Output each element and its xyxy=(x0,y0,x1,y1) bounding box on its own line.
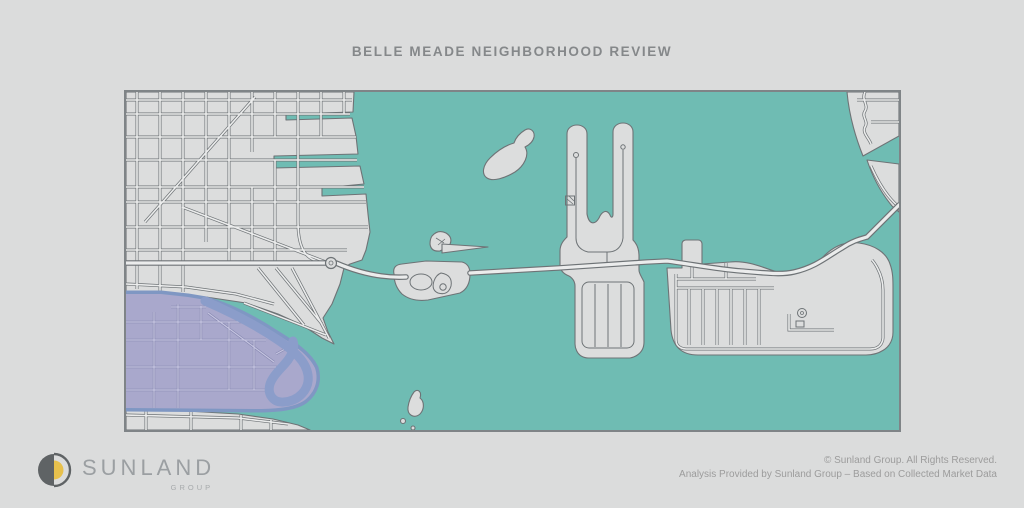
logo-brand-name: SUNLAND xyxy=(82,450,215,486)
footer-credits: © Sunland Group. All Rights Reserved. An… xyxy=(679,454,997,482)
map-canvas xyxy=(126,92,899,430)
page-title: BELLE MEADE NEIGHBORHOOD REVIEW xyxy=(0,44,1024,59)
roundabout xyxy=(326,258,337,269)
neighborhood-map xyxy=(124,90,901,432)
copyright-line: © Sunland Group. All Rights Reserved. xyxy=(679,454,997,468)
sunland-logo: SUNLAND GROUP xyxy=(36,450,215,490)
page: { "page": { "background_color": "#dbdcdc… xyxy=(0,0,1024,508)
logo-text: SUNLAND GROUP xyxy=(82,450,215,490)
logo-brand-suffix: GROUP xyxy=(171,483,214,492)
analysis-line: Analysis Provided by Sunland Group – Bas… xyxy=(679,468,997,482)
sunland-logo-icon xyxy=(36,452,72,488)
